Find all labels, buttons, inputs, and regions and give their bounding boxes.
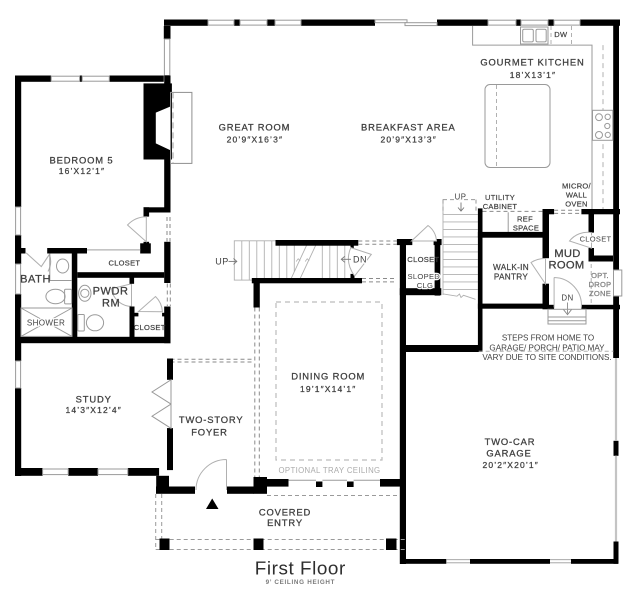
svg-text:REF: REF — [517, 215, 533, 224]
svg-text:CLOSET: CLOSET — [580, 235, 612, 244]
svg-text:20’2″X20’1″: 20’2″X20’1″ — [482, 460, 538, 470]
svg-text:BREAKFAST AREA: BREAKFAST AREA — [361, 122, 456, 133]
svg-text:BEDROOM 5: BEDROOM 5 — [50, 155, 114, 166]
svg-text:20’9″X16’3″: 20’9″X16’3″ — [227, 135, 283, 145]
svg-text:CLG: CLG — [417, 281, 434, 290]
svg-text:RM: RM — [102, 297, 120, 309]
svg-text:BATH: BATH — [20, 274, 51, 286]
svg-text:DINING ROOM: DINING ROOM — [291, 371, 365, 382]
svg-text:DW: DW — [554, 30, 568, 39]
svg-text:16’X12’1″: 16’X12’1″ — [59, 166, 105, 176]
svg-text:SPACE: SPACE — [513, 224, 539, 233]
svg-text:FOYER: FOYER — [191, 427, 228, 438]
svg-text:First Floor: First Floor — [255, 559, 346, 580]
svg-text:CLOSET: CLOSET — [108, 258, 140, 267]
svg-text:OVEN: OVEN — [565, 200, 587, 209]
svg-text:PANTRY: PANTRY — [494, 273, 528, 282]
svg-text:20’9″X13’3″: 20’9″X13’3″ — [380, 135, 436, 145]
svg-text:STEPS FROM HOME TO: STEPS FROM HOME TO — [502, 334, 594, 343]
svg-text:GOURMET KITCHEN: GOURMET KITCHEN — [480, 57, 584, 68]
svg-text:DN: DN — [561, 294, 573, 303]
svg-text:MICRO/: MICRO/ — [562, 182, 591, 191]
svg-text:CLOSET: CLOSET — [407, 255, 439, 264]
svg-text:14’3″X12’4″: 14’3″X12’4″ — [65, 405, 121, 415]
svg-text:ROOM: ROOM — [548, 260, 584, 272]
svg-text:18’X13’1″: 18’X13’1″ — [510, 70, 556, 80]
svg-text:GREAT ROOM: GREAT ROOM — [219, 122, 291, 133]
svg-text:CABINET: CABINET — [483, 202, 518, 211]
svg-text:WALK-IN: WALK-IN — [493, 263, 529, 272]
svg-text:WALL: WALL — [566, 191, 587, 200]
svg-text:COVERED: COVERED — [259, 506, 311, 517]
svg-text:ZONE: ZONE — [589, 289, 611, 298]
svg-text:TWO-CAR: TWO-CAR — [485, 436, 536, 447]
svg-text:VARY DUE TO SITE CONDITIONS.: VARY DUE TO SITE CONDITIONS. — [482, 353, 611, 362]
svg-text:SLOPED: SLOPED — [407, 272, 440, 281]
svg-text:DN: DN — [353, 255, 367, 265]
svg-text:UP: UP — [215, 257, 229, 267]
svg-text:CLOSET: CLOSET — [134, 323, 166, 332]
svg-text:ENTRY: ENTRY — [267, 517, 303, 528]
svg-text:PWDR: PWDR — [93, 285, 129, 297]
svg-text:19’1″X14’1″: 19’1″X14’1″ — [300, 384, 356, 394]
svg-text:9’ CEILING HEIGHT: 9’ CEILING HEIGHT — [266, 579, 336, 586]
svg-text:OPTIONAL TRAY CEILING: OPTIONAL TRAY CEILING — [279, 466, 381, 475]
svg-text:MUD: MUD — [554, 248, 580, 260]
svg-text:UP: UP — [455, 193, 467, 202]
svg-text:OPT.: OPT. — [591, 271, 609, 280]
svg-text:DROP: DROP — [589, 280, 612, 289]
svg-text:TWO-STORY: TWO-STORY — [179, 414, 244, 425]
svg-text:SHOWER: SHOWER — [27, 319, 65, 328]
svg-text:STUDY: STUDY — [76, 394, 112, 405]
svg-text:UTILITY: UTILITY — [485, 193, 515, 202]
svg-text:GARAGE: GARAGE — [486, 447, 531, 458]
